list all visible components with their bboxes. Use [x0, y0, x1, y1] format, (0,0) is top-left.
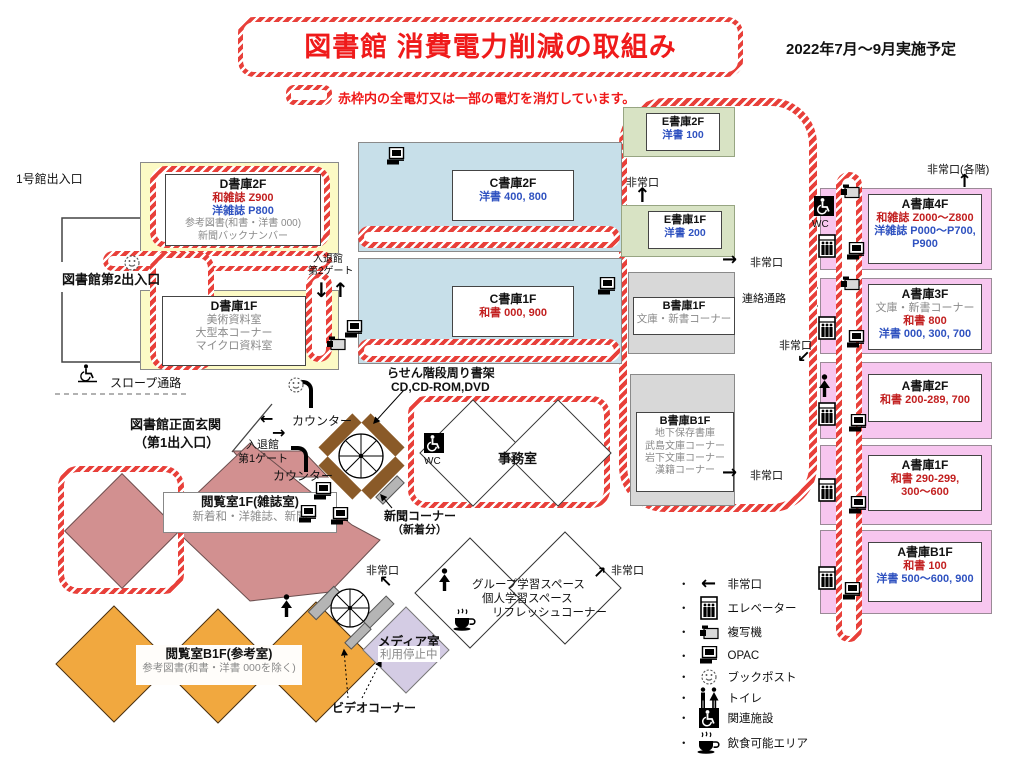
legend-label: ブックポスト — [728, 669, 797, 685]
room-line: 和書 200-289, 700 — [871, 394, 979, 407]
book-post-icon — [696, 669, 722, 685]
room-line: 大型本コーナー — [165, 327, 303, 340]
corridor-line — [62, 292, 140, 362]
room-line: 武島文庫コーナー — [639, 441, 731, 453]
legend-label: 関連施設 — [728, 710, 774, 726]
main-entrance-label-2: （第1出入口） — [134, 432, 219, 451]
spiral-label-pointer — [374, 390, 404, 423]
wheelchair-icon — [696, 708, 722, 728]
room-name: A書庫B1F — [871, 545, 979, 560]
book-post-icon — [288, 377, 304, 393]
room-c1f-label: C書庫1F 和書 000, 900 — [452, 286, 574, 337]
room-line: 参考図書(和書・洋書 000) — [168, 218, 318, 230]
opac-icon — [298, 505, 318, 524]
room-a2f-label: A書庫2F 和書 200-289, 700 — [868, 374, 982, 422]
legend-label: 複写機 — [728, 624, 763, 640]
room-ab1f-label: A書庫B1F 和書 100 洋書 500～600, 900 — [868, 542, 982, 602]
room-line: 和書 100 — [871, 560, 979, 573]
legend-label: 非常口 — [728, 576, 763, 592]
elevator-icon — [818, 402, 836, 426]
refresh-corner-cup-icon — [452, 608, 477, 631]
toilet-person-icon — [438, 568, 451, 592]
room-e1f-label: E書庫1F 洋書 200 — [648, 211, 722, 249]
room-line: 洋書 100 — [649, 129, 717, 142]
legend-bullet: ・ — [678, 576, 690, 592]
counter-label-1: カウンター — [292, 412, 352, 429]
legend-bullet: ・ — [678, 648, 690, 664]
area-name: 閲覧室B1F(参考室) — [138, 647, 300, 662]
room-d2f-label: D書庫2F 和雑誌 Z900 洋雑誌 P800 参考図書(和書・洋書 000) … — [165, 174, 321, 246]
room-name: C書庫1F — [455, 292, 571, 307]
room-line: 岩下文庫コーナー — [639, 453, 731, 465]
room-line: 漢籍コーナー — [639, 465, 731, 477]
elevator-icon — [818, 566, 836, 590]
legend-item-elevator: ・ エレベーター — [678, 596, 797, 620]
room-line: 地下保存書庫 — [639, 428, 731, 440]
legend-bullet: ・ — [678, 624, 690, 640]
opac-icon — [846, 242, 866, 261]
room-name: E書庫1F — [651, 214, 719, 227]
room-name: A書庫4F — [871, 197, 979, 212]
opac-icon — [330, 507, 350, 526]
legend-bullet: ・ — [678, 735, 690, 751]
room-line: 洋書 500～600, 900 — [871, 573, 979, 586]
slope-label: スロープ通路 — [110, 374, 181, 391]
copier-icon — [326, 336, 346, 351]
entrance1-label: 1号館出入口 — [16, 170, 83, 187]
elevator-icon — [818, 234, 836, 258]
room-name: A書庫1F — [871, 458, 979, 473]
opac-icon — [313, 482, 333, 501]
entrance2-label: 図書館第2出入口 — [62, 269, 160, 288]
legend-bullet: ・ — [678, 600, 690, 616]
legend-item-related: ・ 関連施設 — [678, 708, 774, 728]
a4f-wc-label: WC — [812, 219, 829, 230]
room-line: 和雑誌 Z000～Z800 — [871, 212, 979, 225]
elevator-icon — [818, 316, 836, 340]
area-desc: 参考図書(和書・洋書 000を除く) — [138, 662, 300, 675]
legend-item-toilet: ・ トイレ — [678, 687, 762, 709]
room-line: マイクロ資料室 — [165, 340, 303, 353]
opac-icon — [597, 277, 617, 296]
legend-bullet: ・ — [678, 669, 690, 685]
room-line: 文庫・新書コーナー — [636, 313, 732, 326]
legend-item-bookpost: ・ ブックポスト — [678, 669, 797, 685]
arrow-up-icon: ↑ — [634, 185, 651, 205]
room-c2f-label: C書庫2F 洋書 400, 800 — [452, 170, 574, 221]
room-name: D書庫1F — [165, 299, 303, 314]
opac-icon — [386, 147, 406, 166]
room-d1f-label: D書庫1F 美術資料室 大型本コーナー マイクロ資料室 — [162, 296, 306, 366]
arrow-right-icon: → — [722, 464, 737, 482]
room-line: 和書 290-299, — [871, 473, 979, 486]
opac-icon — [848, 414, 868, 433]
room-a3f-label: A書庫3F 文庫・新書コーナー 和書 800 洋書 000, 300, 700 — [868, 284, 982, 350]
page-title: 図書館 消費電力削減の取組み — [238, 17, 743, 77]
emergency-exit-label: 非常口 — [611, 562, 644, 578]
room-line: 和書 000, 900 — [455, 307, 571, 320]
a4f-wc-wheelchair-icon — [814, 196, 834, 216]
slope-wheelchair-icon — [76, 364, 99, 383]
room-e2f-label: E書庫2F 洋書 100 — [646, 113, 720, 151]
legend-item-opac: ・ OPAC — [678, 646, 759, 665]
room-line: 新聞バックナンバー — [168, 231, 318, 243]
arrow-right-icon: → — [272, 425, 285, 441]
room-line: 洋雑誌 P000～P700, — [871, 225, 979, 238]
room-name: B書庫1F — [636, 300, 732, 313]
room-name: A書庫2F — [871, 379, 979, 394]
copier-icon — [840, 184, 860, 199]
office-wc-label: WC — [424, 456, 441, 467]
arrow-right-icon: → — [722, 251, 737, 269]
room-line: 文庫・新書コーナー — [871, 302, 979, 315]
elevator-icon — [696, 596, 722, 620]
office-wc-wheelchair-icon — [424, 433, 444, 453]
gate1-label-2: 第1ゲート — [238, 450, 288, 466]
readingb1f-label: 閲覧室B1F(参考室) 参考図書(和書・洋書 000を除く) — [136, 645, 302, 685]
opac-icon — [696, 646, 722, 665]
legend-label: エレベーター — [728, 600, 797, 616]
copier-icon — [696, 625, 722, 640]
legend-bullet: ・ — [678, 710, 690, 726]
cup-icon — [696, 731, 722, 754]
arrow-up-icon: ↑ — [957, 173, 972, 191]
c2f-red-band — [358, 226, 620, 248]
opac-icon — [848, 496, 868, 515]
spiral-shelf-label-2: CD,CD-ROM,DVD — [391, 380, 490, 394]
c1f-red-band — [358, 339, 620, 362]
media-room-status: 利用停止中 — [378, 646, 440, 662]
legend-item-emergency: ・ ← 非常口 — [678, 576, 762, 592]
room-line: 洋書 000, 300, 700 — [871, 328, 979, 341]
room-line: 洋雑誌 P800 — [168, 205, 318, 218]
opac-icon — [842, 582, 862, 601]
office-label: 事務室 — [498, 448, 537, 467]
opac-icon — [344, 320, 364, 339]
legend-label: トイレ — [728, 690, 763, 706]
room-name: B書庫B1F — [639, 415, 731, 428]
legend-item-food: ・ 飲食可能エリア — [678, 731, 808, 754]
emergency-exit-label: 非常口 — [750, 254, 783, 270]
main-entrance-label-1: 図書館正面玄関 — [130, 414, 221, 433]
room-name: D書庫2F — [168, 177, 318, 192]
book-post-icon — [124, 255, 140, 271]
legend-bullet: ・ — [678, 690, 690, 706]
period-label: 2022年7月～9月実施予定 — [786, 38, 956, 59]
legend-red-swatch — [286, 85, 332, 105]
gate2-label-2: 第2ゲート — [308, 262, 354, 277]
room-line: 和書 800 — [871, 315, 979, 328]
room-name: C書庫2F — [455, 176, 571, 191]
room-line: P900 — [871, 238, 979, 251]
newspaper-label-2: （新着分） — [392, 521, 447, 537]
legend-note: 赤枠内の全電灯又は一部の電灯を消灯しています。 — [338, 88, 635, 107]
renraku-label: 連絡通路 — [742, 290, 786, 306]
legend-item-copier: ・ 複写機 — [678, 624, 762, 640]
spiral-shelf-label-1: らせん階段周り書架 — [387, 364, 495, 381]
library-power-saving-map: 図書館 消費電力削減の取組み 2022年7月～9月実施予定 赤枠内の全電灯又は一… — [0, 0, 1024, 765]
arrow-up-left-icon: ↖ — [379, 574, 392, 590]
toilet-person-icon — [280, 594, 293, 618]
arrow-down-icon: ↓ — [313, 280, 330, 300]
room-b1f-label: B書庫1F 文庫・新書コーナー — [633, 297, 735, 335]
opac-icon — [846, 330, 866, 349]
room-line: 洋書 200 — [651, 227, 719, 240]
room-name: E書庫2F — [649, 116, 717, 129]
room-name: A書庫3F — [871, 287, 979, 302]
room-a1f-label: A書庫1F 和書 290-299, 300～600 — [868, 455, 982, 511]
room-bb1f-label: B書庫B1F 地下保存書庫 武島文庫コーナー 岩下文庫コーナー 漢籍コーナー — [636, 412, 734, 492]
arrow-up-icon: ↑ — [332, 280, 349, 300]
room-line: 美術資料室 — [165, 314, 303, 327]
room-line: 洋書 400, 800 — [455, 191, 571, 204]
room-line: 和雑誌 Z900 — [168, 192, 318, 205]
copier-icon — [840, 276, 860, 291]
legend-label: OPAC — [728, 650, 760, 662]
arrow-down-left-icon: ↙ — [797, 349, 810, 365]
room-a4f-label: A書庫4F 和雑誌 Z000～Z800 洋雑誌 P000～P700, P900 — [868, 194, 982, 264]
elevator-icon — [818, 478, 836, 502]
video-corner-label: ビデオコーナー — [332, 699, 416, 716]
legend-label: 飲食可能エリア — [728, 735, 809, 751]
room-line: 300～600 — [871, 486, 979, 499]
toilet-person-icon — [818, 374, 831, 398]
gate-hook — [291, 446, 308, 472]
emergency-exit-label: 非常口 — [750, 467, 783, 483]
study-space-label-3: リフレッシュコーナー — [492, 604, 607, 620]
arrow-up-right-icon: ↗ — [593, 565, 606, 581]
toilet-icon — [696, 687, 722, 709]
